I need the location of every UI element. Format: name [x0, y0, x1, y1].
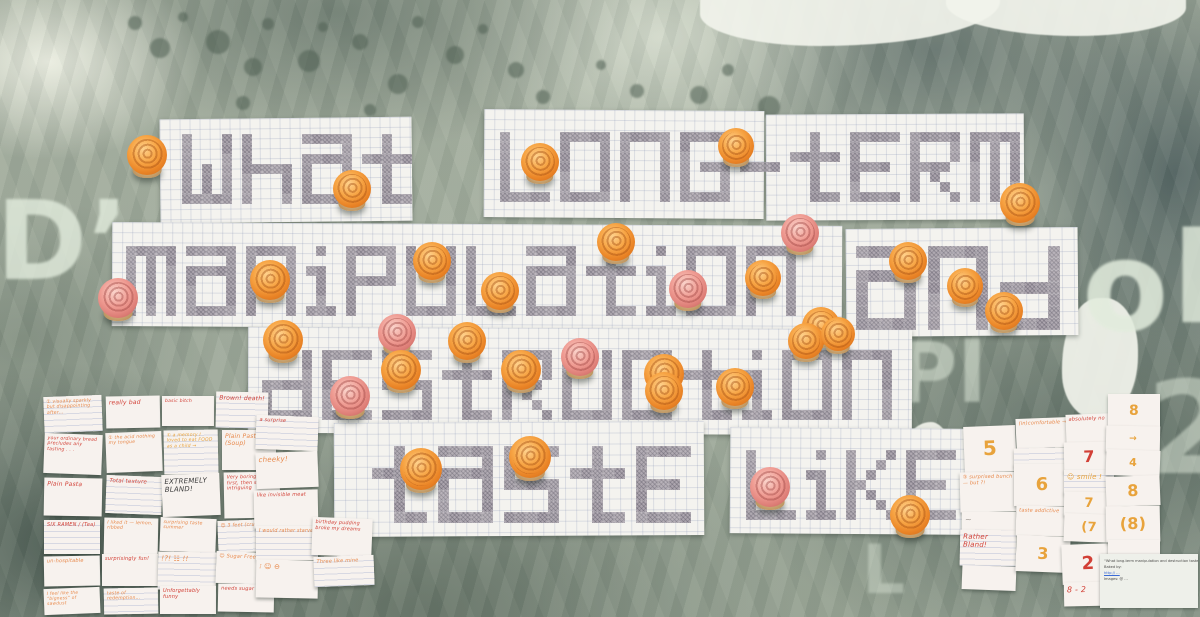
pixel-letter-cell [438, 490, 449, 501]
pixel-letter-cell [680, 192, 690, 202]
pixel-letter-cell [560, 152, 570, 162]
pixel-letter-cell [930, 132, 940, 142]
pixel-letter-cell [392, 154, 402, 164]
pixel-letter-cell [722, 410, 732, 420]
pixel-letter-cell [216, 246, 226, 256]
pixel-letter-cell [882, 390, 892, 400]
pixel-letter-cell [860, 192, 870, 202]
pixel-letter-cell [856, 306, 868, 318]
pixel-letter-cell [690, 192, 700, 202]
pixel-letter-cell [560, 162, 570, 172]
dye-splotch [536, 90, 550, 104]
pixel-letter-cell [603, 468, 614, 479]
pixel-letter-cell [566, 276, 576, 286]
pixel-letter-cell [332, 350, 342, 360]
pixel-letter-cell [466, 306, 476, 316]
pixel-letter-cell [640, 132, 650, 142]
rating-card: 8 [1108, 394, 1160, 428]
pixel-letter-cell [822, 370, 832, 380]
pixel-letter-cell [946, 510, 956, 520]
pixel-letter-cell [622, 380, 632, 390]
pixel-letter-cell [302, 360, 312, 370]
pixel-letter-cell [580, 192, 590, 202]
cupcake-icing [718, 128, 754, 164]
pixel-letter-cell [542, 410, 552, 420]
pixel-letter-cell [669, 479, 680, 490]
pixel-letter-cell [566, 246, 576, 256]
pixel-letter-cell [449, 512, 460, 523]
pixel-letter-cell [606, 296, 616, 306]
pixel-letter-cell [500, 172, 510, 182]
pixel-letter-cell [526, 266, 536, 276]
cupcake-icing [597, 223, 635, 261]
pixel-letter-cell [876, 460, 886, 470]
pixel-letter-cell [990, 162, 1000, 172]
cupcake [330, 376, 370, 416]
pixel-letter-cell [206, 246, 216, 256]
dye-splotch [128, 16, 142, 30]
dye-splotch [298, 50, 320, 72]
pixel-letter-cell [302, 164, 312, 174]
pixel-letter-cell [928, 270, 940, 282]
pixel-letter-cell [658, 479, 669, 490]
pixel-letter-cell [226, 306, 236, 316]
pixel-letter-cell [436, 306, 446, 316]
pixel-letter-cell [632, 410, 642, 420]
pixel-letter-cell [536, 246, 546, 256]
pixel-letter-cell [196, 246, 206, 256]
pixel-letter-cell [616, 306, 626, 316]
pixel-letter-cell [146, 306, 156, 316]
pixel-letter-cell [928, 306, 940, 318]
pixel-letter-cell [940, 246, 952, 258]
pixel-letter-cell [438, 501, 449, 512]
pixel-letter-cell [542, 370, 552, 380]
pixel-letter-cell [880, 162, 890, 172]
pixel-letter-cell [906, 480, 916, 490]
pixel-letter-cell [502, 400, 512, 410]
pixel-letter-cell [904, 294, 916, 306]
pixel-letter-cell [800, 152, 810, 162]
pixel-letter-cell [386, 246, 396, 256]
caption-plaque: “What long-term manipulation and destruc… [1100, 554, 1198, 608]
pixel-letter-cell [196, 306, 206, 316]
pixel-letter-cell [556, 266, 566, 276]
pixel-letter-cell [822, 380, 832, 390]
pixel-letter-cell [756, 246, 766, 256]
pixel-letter-cell [702, 400, 712, 410]
fabric-stencil-letter: o [1082, 230, 1169, 343]
pixel-letter-cell [970, 162, 980, 172]
pixel-letter-cell [904, 306, 916, 318]
pixel-letter-cell [882, 400, 892, 410]
pixel-letter-cell [520, 192, 530, 202]
pixel-letter-cell [658, 512, 669, 523]
pixel-letter-cell [452, 370, 462, 380]
pixel-letter-cell [852, 350, 862, 360]
pixel-letter-cell [202, 194, 212, 204]
pixel-letter-cell [786, 296, 796, 306]
dye-splotch [352, 34, 368, 50]
pixel-letter-cell [622, 410, 632, 420]
comment-card: Unforgettably funny [160, 586, 216, 614]
pixel-letter-cell [186, 296, 196, 306]
pixel-letter-cell [756, 510, 766, 520]
pixel-letter-cell [546, 306, 556, 316]
pixel-letter-cell [462, 410, 472, 420]
pixel-letter-cell [806, 470, 816, 480]
pixel-letter-cell [316, 246, 326, 256]
pixel-letter-cell [620, 172, 630, 182]
pixel-letter-cell [870, 132, 880, 142]
pixel-letter-cell [920, 162, 930, 172]
pixel-letter-cell [846, 510, 856, 520]
pixel-letter-cell [482, 410, 492, 420]
pixel-letter-cell [382, 410, 392, 420]
cupcake-icing [750, 467, 790, 507]
pixel-letter-cell [406, 286, 416, 296]
pixel-letter-cell [466, 246, 476, 256]
pixel-letter-cell [256, 246, 266, 256]
pixel-letter-cell [990, 172, 1000, 182]
pixel-letter-cell [910, 192, 920, 202]
pixel-letter-cell [146, 256, 156, 266]
pixel-letter-cell [660, 142, 670, 152]
pixel-letter-cell [206, 266, 216, 276]
pixel-letter-cell [964, 246, 976, 258]
pixel-letter-cell [603, 512, 614, 523]
pixel-letter-cell [950, 152, 960, 162]
pixel-letter-cell [606, 276, 616, 286]
pixel-letter-cell [816, 450, 826, 460]
comment-card: surprisingly fun! [102, 554, 158, 586]
pixel-letter-cell [366, 276, 376, 286]
pixel-letter-cell [532, 400, 542, 410]
pixel-letter-cell [402, 410, 412, 420]
pixel-letter-cell [1048, 318, 1060, 330]
pixel-letter-cell [382, 174, 392, 184]
pixel-letter-cell [566, 256, 576, 266]
pixel-letter-cell [482, 446, 493, 457]
pixel-letter-cell [272, 164, 282, 174]
pixel-letter-cell [600, 172, 610, 182]
rating-card: Rather Bland! [960, 529, 1017, 566]
pixel-letter-cell [846, 500, 856, 510]
comment-card: surprising taste summer [159, 517, 216, 553]
pixel-letter-cell [449, 446, 460, 457]
pixel-letter-cell [449, 468, 460, 479]
pixel-letter-cell [892, 318, 904, 330]
pixel-letter-cell [216, 266, 226, 276]
cupcake [481, 272, 519, 310]
pixel-letter-cell [302, 390, 312, 400]
pixel-letter-cell [372, 468, 383, 479]
pixel-letter-cell [1048, 246, 1060, 258]
pixel-letter-cell [1010, 142, 1020, 152]
pixel-letter-cell [786, 510, 796, 520]
pixel-letter-cell [650, 132, 660, 142]
cupcake [413, 242, 451, 280]
pixel-letter-cell [282, 174, 292, 184]
pixel-letter-cell [856, 294, 868, 306]
pixel-letter-cell [636, 446, 647, 457]
pixel-letter-cell [706, 306, 716, 316]
pixel-letter-cell [602, 400, 612, 410]
comment-card: I would rather starve [256, 526, 318, 560]
pixel-letter-cell [316, 276, 326, 286]
comment-card: like invisible meat [254, 489, 319, 528]
pixel-letter-cell [356, 276, 366, 286]
pixel-letter-cell [660, 162, 670, 172]
pixel-letter-cell [242, 164, 252, 174]
pixel-letter-cell [936, 480, 946, 490]
pixel-letter-cell [590, 192, 600, 202]
pixel-letter-cell [302, 134, 312, 144]
pixel-letter-cell [546, 266, 556, 276]
pixel-letter-cell [636, 468, 647, 479]
pixel-letter-cell [383, 468, 394, 479]
cupcake-icing [448, 322, 486, 360]
pixel-letter-cell [202, 164, 212, 174]
pixel-letter-cell [656, 246, 666, 256]
pixel-letter-cell [950, 192, 960, 202]
pixel-letter-cell [242, 144, 252, 154]
pixel-letter-cell [446, 296, 456, 306]
pixel-letter-cell [606, 286, 616, 296]
pixel-letter-cell [846, 450, 856, 460]
plaque-text-line: Images: @ … [1104, 576, 1194, 582]
pixel-letter-cell [226, 266, 236, 276]
pixel-letter-cell [382, 144, 392, 154]
pixel-letter-cell [502, 390, 512, 400]
pixel-letter-cell [702, 360, 712, 370]
comment-card: Total texture [105, 475, 162, 515]
pixel-letter-cell [916, 480, 926, 490]
pixel-letter-cell [376, 276, 386, 286]
pixel-letter-cell [680, 162, 690, 172]
pixel-letter-cell [556, 246, 566, 256]
pixel-letter-cell [1010, 172, 1020, 182]
comment-card: a surprise [255, 415, 318, 451]
pixel-letter-cell [392, 194, 402, 204]
pixel-letter-cell [930, 162, 940, 172]
pixel-letter-cell [166, 246, 176, 256]
dye-splotch [388, 74, 408, 94]
pixel-letter-cell [880, 318, 892, 330]
pixel-letter-cell [680, 152, 690, 162]
pixel-letter-cell [322, 360, 332, 370]
pixel-letter-cell [726, 246, 736, 256]
pixel-letter-cell [910, 142, 920, 152]
pixel-letter-cell [860, 162, 870, 172]
pixel-letter-cell [600, 152, 610, 162]
pixel-letter-cell [826, 510, 836, 520]
pixel-letter-cell [182, 174, 192, 184]
pixel-letter-cell [306, 306, 316, 316]
pixel-letter-cell [302, 154, 312, 164]
pixel-letter-cell [786, 286, 796, 296]
rating-card: ③ surprised bunch — but ?! [960, 471, 1017, 512]
pixel-letter-cell [970, 182, 980, 192]
pixel-letter-cell [850, 162, 860, 172]
pixel-letter-cell [868, 270, 880, 282]
pixel-letter-cell [186, 306, 196, 316]
cupcake-icing [889, 242, 927, 280]
pixel-letter-cell [252, 164, 262, 174]
pixel-letter-cell [482, 457, 493, 468]
pixel-letter-cell [472, 370, 482, 380]
pixel-letter-cell [1010, 152, 1020, 162]
rating-card: taste addictive [1016, 505, 1071, 536]
pixel-letter-cell [660, 182, 670, 192]
pixel-letter-cell [592, 490, 603, 501]
pixel-letter-cell [766, 246, 776, 256]
pixel-letter-cell [1048, 306, 1060, 318]
pixel-letter-cell [696, 246, 706, 256]
cupcake [127, 135, 167, 175]
pixel-letter-cell [936, 450, 946, 460]
pixel-letter-cell [702, 410, 712, 420]
pixel-letter-cell [182, 154, 192, 164]
pixel-letter-cell [782, 390, 792, 400]
cupcake-icing [561, 338, 599, 376]
pixel-letter-cell [816, 500, 826, 510]
pixel-letter-cell [126, 256, 136, 266]
pixel-letter-cell [302, 380, 312, 390]
pixel-letter-cell [636, 490, 647, 501]
pixel-letter-cell [910, 132, 920, 142]
gallery-wall-photo: Photograph of a gallery wall: pencil-sha… [0, 0, 1200, 617]
pixel-letter-cell [502, 410, 512, 420]
pixel-letter-cell [592, 457, 603, 468]
pixel-letter-cell [952, 246, 964, 258]
pixel-letter-cell [660, 172, 670, 182]
pixel-letter-cell [222, 154, 232, 164]
pixel-letter-cell [700, 132, 710, 142]
cupcake [378, 314, 416, 352]
pixel-letter-cell [1048, 282, 1060, 294]
pixel-letter-cell [466, 296, 476, 306]
cupcake [381, 350, 421, 390]
pixel-letter-cell [500, 162, 510, 172]
pixel-letter-cell [842, 370, 852, 380]
cupcake [645, 372, 683, 410]
pixel-letter-cell [882, 370, 892, 380]
pixel-letter-cell [856, 246, 868, 258]
pixel-letter-cell [822, 390, 832, 400]
pixel-letter-cell [226, 246, 236, 256]
pixel-letter-cell [322, 350, 332, 360]
pixel-letter-cell [192, 194, 202, 204]
pixel-letter-cell [394, 501, 405, 512]
pixel-letter-cell [542, 350, 552, 360]
pixel-letter-cell [600, 132, 610, 142]
pixel-letter-cell [182, 144, 192, 154]
cupcake [561, 338, 599, 376]
pixel-letter-cell [680, 446, 691, 457]
pixel-letter-cell [816, 510, 826, 520]
pixel-letter-cell [322, 134, 332, 144]
cupcake-icing [481, 272, 519, 310]
pixel-letter-cell [950, 132, 960, 142]
pixel-letter-cell [860, 132, 870, 142]
pixel-letter-cell [302, 184, 312, 194]
pixel-letter-cell [166, 286, 176, 296]
pixel-letter-cell [990, 132, 1000, 142]
pixel-letter-cell [1010, 132, 1020, 142]
pixel-letter-cell [710, 192, 720, 202]
pixel-letter-cell [332, 134, 342, 144]
cupcake [448, 322, 486, 360]
pixel-letter-cell [406, 296, 416, 306]
rating-card: (in)comfortable → [1015, 417, 1070, 449]
pixel-letter-cell [786, 266, 796, 276]
pixel-letter-cell [392, 410, 402, 420]
pixel-letter-cell [602, 380, 612, 390]
pixel-letter-cell [602, 370, 612, 380]
comment-card: really bad [106, 395, 161, 428]
pixel-letter-cell [500, 152, 510, 162]
pixel-letter-cell [582, 410, 592, 420]
cupcake-icing [788, 323, 824, 359]
pixel-letter-cell [656, 276, 666, 286]
pixel-letter-cell [510, 192, 520, 202]
pixel-letter-cell [928, 318, 940, 330]
pixel-letter-cell [786, 306, 796, 316]
pixel-letter-cell [810, 152, 820, 162]
pixel-letter-cell [592, 446, 603, 457]
pixel-letter-cell [346, 256, 356, 266]
pixel-letter-cell [1000, 132, 1010, 142]
dye-splotch [318, 22, 328, 32]
pixel-letter-cell [302, 350, 312, 360]
pixel-letter-cell [882, 380, 892, 390]
pixel-letter-cell [306, 266, 316, 276]
pixel-letter-cell [928, 294, 940, 306]
pixel-letter-cell [342, 350, 352, 360]
cupcake [821, 317, 855, 351]
pixel-letter-cell [442, 370, 452, 380]
fabric-stencil-letter: b [1172, 222, 1200, 335]
pixel-letter-cell [322, 194, 332, 204]
pixel-letter-cell [890, 192, 900, 202]
pixel-letter-cell [600, 142, 610, 152]
pixel-letter-cell [882, 410, 892, 420]
pixel-letter-cell [810, 192, 820, 202]
pixel-letter-cell [526, 276, 536, 286]
pixel-letter-cell [566, 296, 576, 306]
pixel-letter-cell [600, 182, 610, 192]
pixel-letter-cell [592, 468, 603, 479]
pixel-letter-cell [870, 192, 880, 202]
pixel-letter-cell [537, 512, 548, 523]
pixel-letter-cell [770, 162, 780, 172]
cupcake [985, 292, 1023, 330]
pixel-letter-cell [622, 400, 632, 410]
pixel-letter-cell [766, 510, 776, 520]
pixel-letter-cell [466, 266, 476, 276]
dye-splotch [262, 18, 274, 30]
dye-splotch [178, 12, 188, 22]
pixel-letter-cell [726, 306, 736, 316]
pixel-letter-cell [560, 182, 570, 192]
pixel-letter-cell [546, 246, 556, 256]
pixel-letter-cell [586, 266, 596, 276]
pixel-letter-cell [846, 470, 856, 480]
pixel-letter-cell [856, 318, 868, 330]
pixel-letter-cell [940, 182, 950, 192]
pixel-letter-cell [720, 192, 730, 202]
